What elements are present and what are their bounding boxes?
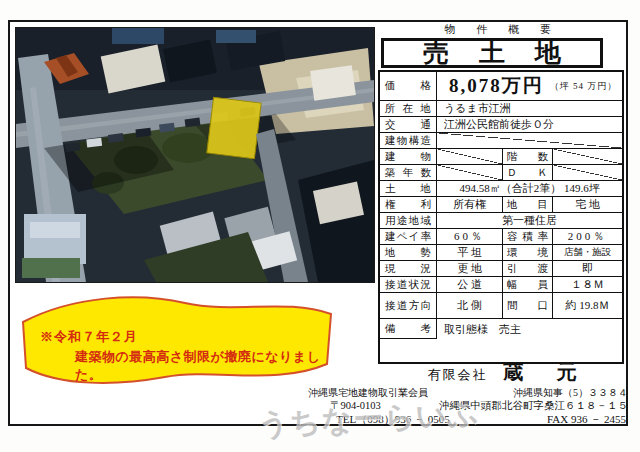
company-name-line: 有限会社 蔵 元 xyxy=(378,359,626,386)
flyer-page: 物 件 概 要 売土地 価格 8,078万円 （坪 54 万円） 所在地 うるま… xyxy=(0,0,640,452)
handover-label: 引渡 xyxy=(507,262,548,276)
age-value-empty xyxy=(437,165,503,180)
land-value: 494.58㎡（合計2筆） 149.6坪 xyxy=(437,181,622,196)
notice-line2: 建築物の最高高さ制限が撤廃になりました。 xyxy=(75,348,343,384)
table-row-road-direction: 接道方向 北 側 間口 約 19.8Ｍ xyxy=(380,292,622,318)
road-direction-value: 北 側 xyxy=(437,293,503,318)
aerial-photo xyxy=(15,27,375,283)
table-row-rights: 権利 所有権 地目 宅 地 xyxy=(380,196,622,212)
table-row-location: 所在地 うるま市江洲 xyxy=(380,100,622,116)
table-row-remarks: 備考 取引態様 売主 xyxy=(380,318,622,362)
dk-label: Ｄ Ｋ xyxy=(507,166,548,180)
age-label: 築年数 xyxy=(385,166,431,180)
table-row-price: 価格 8,078万円 （坪 54 万円） xyxy=(380,72,622,100)
building-value-empty xyxy=(437,149,503,164)
width-label: 幅員 xyxy=(507,278,548,292)
zoning-value: 第一種住居 xyxy=(437,213,622,228)
coverage-value: 60％ xyxy=(437,229,503,244)
environment-label: 環境 xyxy=(507,246,548,260)
current-label: 現況 xyxy=(385,262,431,276)
building-label: 建物 xyxy=(385,150,431,164)
company-fax: FAX 936 － 2455 xyxy=(547,412,626,427)
floors-label: 階数 xyxy=(507,150,548,164)
road-value: 公 道 xyxy=(437,277,503,292)
terrain-label: 地勢 xyxy=(385,246,431,260)
road-label: 接道状況 xyxy=(385,278,431,292)
notice-line1: ※令和７年２月 xyxy=(40,328,138,346)
overview-heading: 物 件 概 要 xyxy=(378,22,626,37)
remarks-label: 備考 xyxy=(385,322,431,336)
table-row-road: 接道状況 公 道 幅員 １８Ｍ xyxy=(380,276,622,292)
far-value: 200％ xyxy=(553,229,622,244)
coverage-label: 建ペイ率 xyxy=(385,230,431,244)
company-license: 沖縄県知事（5）３３８４ xyxy=(513,386,628,400)
structure-value-empty xyxy=(437,133,622,148)
location-value: うるま市江洲 xyxy=(437,101,622,116)
current-value: 更 地 xyxy=(437,261,503,276)
table-row-coverage: 建ペイ率 60％ 容積率 200％ xyxy=(380,228,622,244)
frontage-value: 約 19.8Ｍ xyxy=(553,293,622,318)
land-label: 土地 xyxy=(385,182,431,196)
company-name: 蔵 元 xyxy=(504,359,591,386)
table-row-zoning: 用途地域 第一種住居 xyxy=(380,212,622,228)
sale-title: 売土地 xyxy=(423,41,591,66)
company-prefix: 有限会社 xyxy=(428,366,488,384)
aerial-photo-svg xyxy=(16,28,374,282)
zoning-label: 用途地域 xyxy=(385,214,431,228)
road-direction-label: 接道方向 xyxy=(385,299,431,313)
structure-label: 建物構造 xyxy=(385,134,431,148)
table-row-building: 建物 階数 xyxy=(380,148,622,164)
table-row-access: 交通 江洲公民館前徒歩０分 xyxy=(380,116,622,132)
price-value: 8,078万円 xyxy=(449,73,544,99)
price-label: 価格 xyxy=(385,79,431,93)
table-row-current: 現況 更 地 引渡 即 xyxy=(380,260,622,276)
remarks-value: 取引態様 売主 xyxy=(437,319,622,362)
table-row-age: 築年数 Ｄ Ｋ xyxy=(380,164,622,180)
price-per-tsubo: （坪 54 万円） xyxy=(550,80,618,93)
environment-value: 店舗・施設 xyxy=(553,245,622,260)
location-label: 所在地 xyxy=(385,102,431,116)
width-value: １８Ｍ xyxy=(553,277,622,292)
table-row-terrain: 地勢 平 坦 環境 店舗・施設 xyxy=(380,244,622,260)
table-row-land: 土地 494.58㎡（合計2筆） 149.6坪 xyxy=(380,180,622,196)
far-label: 容積率 xyxy=(507,230,548,244)
land-category-label: 地目 xyxy=(507,198,548,212)
dk-value-empty xyxy=(553,165,622,180)
access-value: 江洲公民館前徒歩０分 xyxy=(437,117,622,132)
frontage-label: 間口 xyxy=(507,299,548,313)
terrain-value: 平 坦 xyxy=(437,245,503,260)
floors-value-empty xyxy=(553,149,622,164)
highlighted-parcel xyxy=(207,97,261,158)
access-label: 交通 xyxy=(385,118,431,132)
handover-value: 即 xyxy=(553,261,622,276)
notice-banner: ※令和７年２月 建築物の最高高さ制限が撤廃になりました。 xyxy=(13,290,343,392)
sale-title-box: 売土地 xyxy=(381,38,603,68)
property-table: 価格 8,078万円 （坪 54 万円） 所在地 うるま市江洲 交通 江洲公民館… xyxy=(378,70,624,364)
rights-label: 権利 xyxy=(385,198,431,212)
rights-value: 所有権 xyxy=(437,197,503,212)
table-row-structure: 建物構造 xyxy=(380,132,622,148)
land-category-value: 宅 地 xyxy=(553,197,622,212)
